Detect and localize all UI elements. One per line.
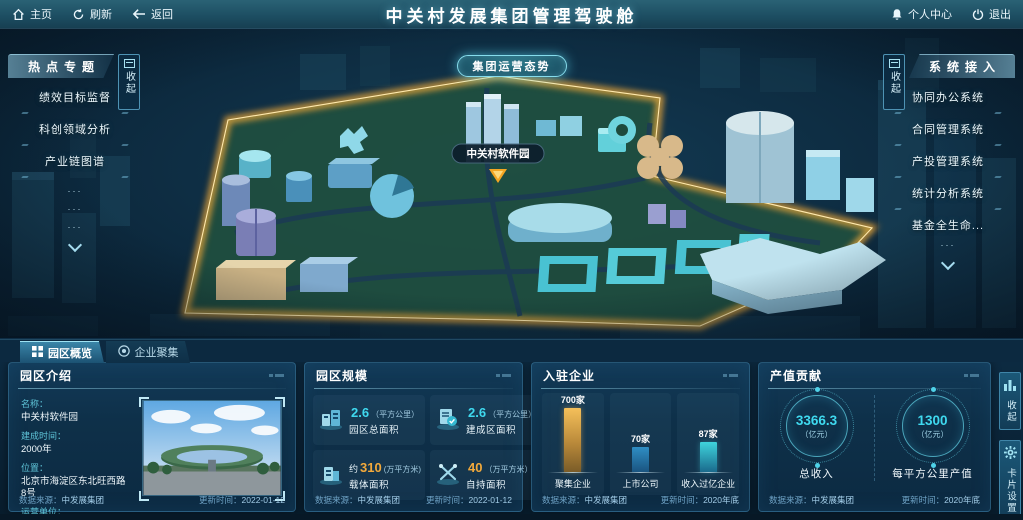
stat-selfheld-area: 40（万平方米） 自持面积 [430, 450, 540, 500]
system-access-panel: 系统接入 收起 协同办公系统 合同管理系统 产投管理系统 统计分析系统 基金全生… [881, 54, 1015, 268]
chart-bars-icon [1004, 378, 1016, 396]
grid-icon [32, 346, 43, 360]
stat-built-area: 2.6（平方公里） 建成区面积 [430, 395, 540, 445]
enterprises-panel: 入驻企业 700家 聚集企业 70家 上市公司 87家 [531, 362, 750, 512]
logout-button[interactable]: 退出 [972, 6, 1011, 22]
system-access-list: 协同办公系统 合同管理系统 产投管理系统 统计分析系统 基金全生命... ··· [881, 86, 1015, 268]
system-item-contract[interactable]: 合同管理系统 [881, 118, 1015, 140]
bar-aggregated: 700家 聚集企业 [542, 393, 604, 495]
home-icon [12, 8, 25, 21]
system-item-investment[interactable]: 产投管理系统 [881, 150, 1015, 172]
park-photo [139, 397, 285, 501]
header-deco [496, 374, 511, 377]
system-access-collapse-button[interactable]: 收起 [883, 54, 905, 110]
panel-footer: 数据来源：中发展集团 更新时间：2020年底 [542, 494, 739, 506]
bar-listed: 70家 上市公司 [610, 393, 672, 495]
park-scale-panel: 园区规模 2.6（平方公里） 园区总面积 2.6（平方公里） 建成区面积 [304, 362, 523, 512]
gauge-output-per-km2: 1300 （亿元） 每平方公里产值 [874, 395, 990, 481]
back-arrow-icon [132, 8, 146, 20]
chevron-down-icon[interactable] [941, 256, 955, 270]
stat-total-area: 2.6（平方公里） 园区总面积 [313, 395, 425, 445]
back-button[interactable]: 返回 [132, 6, 173, 22]
profile-button[interactable]: 个人中心 [891, 6, 952, 22]
dashboard-root: 主页 刷新 返回 中关村发展集团管理驾驶舱 个人中心 退出 [0, 0, 1023, 520]
right-tool-buttons: 收起 卡片设置 [999, 372, 1021, 520]
collapse-icon [889, 59, 900, 68]
bar [700, 442, 717, 472]
map-3d-scene: 中关村软件园 集团运营态势 热点专题 收起 绩效目标监督 科创领域分析 产业链图… [0, 28, 1023, 340]
kpi-panels-row: 园区介绍 名称： 中关村软件园 建成时间： 2000年 位置： 北京市海淀区东北… [8, 362, 991, 512]
menu-item-placeholder: ··· [8, 200, 142, 218]
menu-item-scitech[interactable]: 科创领域分析 [8, 118, 142, 140]
gauge-circle: 3366.3 （亿元） [786, 395, 848, 457]
power-icon [972, 8, 984, 21]
chevron-down-icon[interactable] [68, 238, 82, 252]
panels-collapse-button[interactable]: 收起 [999, 372, 1021, 430]
bar [564, 408, 581, 472]
panel-title: 园区介绍 [20, 367, 72, 384]
panel-footer: 数据来源：中发展集团 更新时间：2022-01-12 [19, 494, 285, 506]
bar-over100m: 87家 收入过亿企业 [677, 393, 739, 495]
tab-enterprise-cluster[interactable]: 企业聚集 [106, 341, 190, 363]
hot-topics-panel: 热点专题 收起 绩效目标监督 科创领域分析 产业链图谱 ··· ··· ··· [8, 54, 142, 250]
gauge-circle: 1300 （亿元） [902, 395, 964, 457]
panel-title: 园区规模 [316, 367, 368, 384]
bar [632, 447, 649, 472]
menu-item-placeholder: ··· [881, 236, 1015, 254]
tab-bar: 园区概览 企业聚集 [0, 339, 1023, 362]
refresh-icon [72, 8, 85, 21]
bell-icon [891, 8, 903, 21]
header-deco [269, 374, 284, 377]
gear-icon [1004, 446, 1017, 464]
park-intro-panel: 园区介绍 名称： 中关村软件园 建成时间： 2000年 位置： 北京市海淀区东北… [8, 362, 296, 512]
document-check-icon [436, 405, 460, 436]
scale-stats-grid: 2.6（平方公里） 园区总面积 2.6（平方公里） 建成区面积 约310(万平方… [305, 389, 522, 500]
system-access-title: 系统接入 [909, 54, 1015, 78]
header-deco [723, 374, 738, 377]
buildings-icon [319, 405, 343, 436]
page-title: 中关村发展集团管理驾驶舱 [342, 2, 681, 27]
tab-park-overview[interactable]: 园区概览 [20, 341, 104, 363]
crossed-flags-icon [436, 460, 460, 491]
output-value-panel: 产值贡献 3366.3 （亿元） 总收入 1300 （亿元） 每平方公里产值 [758, 362, 991, 512]
menu-item-industry-chain[interactable]: 产业链图谱 [8, 150, 142, 172]
top-bar: 主页 刷新 返回 中关村发展集团管理驾驶舱 个人中心 退出 [0, 0, 1023, 28]
building-icon [319, 460, 343, 491]
cluster-icon [118, 345, 130, 360]
hot-topics-title: 热点专题 [8, 54, 114, 78]
header-deco [964, 374, 979, 377]
marker-label-text: 中关村软件园 [467, 147, 530, 160]
home-button[interactable]: 主页 [12, 6, 52, 22]
group-operation-button[interactable]: 集团运营态势 [457, 55, 567, 77]
panel-title: 入驻企业 [543, 367, 595, 384]
topbar-right-group: 个人中心 退出 [681, 6, 1011, 22]
menu-item-placeholder: ··· [8, 218, 142, 236]
topbar-left-group: 主页 刷新 返回 [12, 6, 342, 22]
hot-topics-list: 绩效目标监督 科创领域分析 产业链图谱 ··· ··· ··· [8, 86, 142, 250]
output-gauges: 3366.3 （亿元） 总收入 1300 （亿元） 每平方公里产值 [759, 389, 990, 481]
panel-footer: 数据来源：中发展集团 更新时间：2022-01-12 [315, 494, 512, 506]
hot-topics-collapse-button[interactable]: 收起 [118, 54, 140, 110]
refresh-button[interactable]: 刷新 [72, 6, 112, 22]
bottom-edge [0, 514, 1023, 520]
card-settings-button[interactable]: 卡片设置 [999, 440, 1021, 520]
panel-title: 产值贡献 [770, 367, 822, 384]
enterprise-bar-chart: 700家 聚集企业 70家 上市公司 87家 收入过亿企业 [532, 389, 749, 495]
gauge-total-revenue: 3366.3 （亿元） 总收入 [759, 395, 874, 481]
panel-footer: 数据来源：中发展集团 更新时间：2020年底 [769, 494, 980, 506]
menu-item-placeholder: ··· [8, 182, 142, 200]
collapse-icon [124, 59, 135, 68]
system-item-fund[interactable]: 基金全生命... [881, 214, 1015, 236]
stat-carrier-area: 约310(万平方米) 载体面积 [313, 450, 425, 500]
system-item-statistics[interactable]: 统计分析系统 [881, 182, 1015, 204]
